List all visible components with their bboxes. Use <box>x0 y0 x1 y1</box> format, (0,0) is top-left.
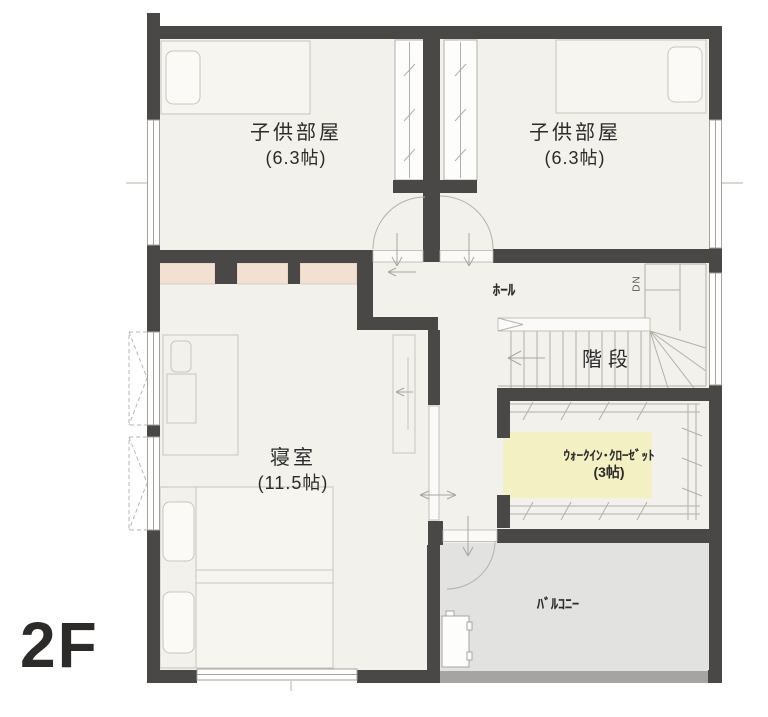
floor-plan-drawing <box>0 0 768 717</box>
door-bedroom-sliding <box>429 406 439 520</box>
room-name: 子供部屋 <box>216 121 376 146</box>
room-name: ﾎｰﾙ <box>464 282 544 301</box>
door-balcony <box>443 530 497 542</box>
room-size: (11.5帖) <box>258 473 329 493</box>
wall-child-rooms-divider <box>423 39 440 262</box>
bedroom-closet-1 <box>158 263 215 284</box>
label-balcony: ﾊﾞﾙｺﾆｰ <box>498 596 618 614</box>
wall-north <box>147 26 722 39</box>
room-name: 階段 <box>568 348 648 373</box>
floor-plan-2f: 子供部屋 (6.3帖) 子供部屋 (6.3帖) 寝室 (11.5帖) ﾎｰﾙ 階… <box>0 0 768 717</box>
floor-number-label: 2F <box>20 608 99 682</box>
wall-west <box>147 530 160 683</box>
label-hall: ﾎｰﾙ <box>464 282 544 301</box>
door-child2 <box>440 251 493 263</box>
room-name: ｳｫｰｸｲﾝ･ｸﾛｰｾﾞｯﾄ <box>519 448 699 464</box>
stair-handrail <box>498 318 650 331</box>
room-size: (6.3帖) <box>265 148 326 168</box>
wall-bedroom-balcony <box>427 545 440 683</box>
wall-stairs-wic <box>497 388 722 401</box>
room-size: (6.3帖) <box>544 148 605 168</box>
wall-wic-balcony <box>497 529 722 543</box>
balcony-railing <box>440 671 708 683</box>
room-name: 子供部屋 <box>495 121 655 146</box>
stairs-down-label: DN <box>632 269 643 299</box>
ac-unit <box>442 611 472 667</box>
label-stairs: 階段 <box>568 348 648 373</box>
room-name: 寝室 <box>213 446 373 471</box>
bedroom-closet-2 <box>237 263 288 284</box>
room-name: ﾊﾞﾙｺﾆｰ <box>498 596 618 614</box>
label-child-room-1: 子供部屋 (6.3帖) <box>216 121 376 171</box>
bedroom-closet-3 <box>300 263 357 284</box>
door-child1 <box>373 251 423 263</box>
room-size: (3帖) <box>593 464 624 480</box>
label-child-room-2: 子供部屋 (6.3帖) <box>495 121 655 171</box>
label-walk-in-closet: ｳｫｰｸｲﾝ･ｸﾛｰｾﾞｯﾄ (3帖) <box>519 448 699 482</box>
label-bedroom: 寝室 (11.5帖) <box>213 446 373 496</box>
